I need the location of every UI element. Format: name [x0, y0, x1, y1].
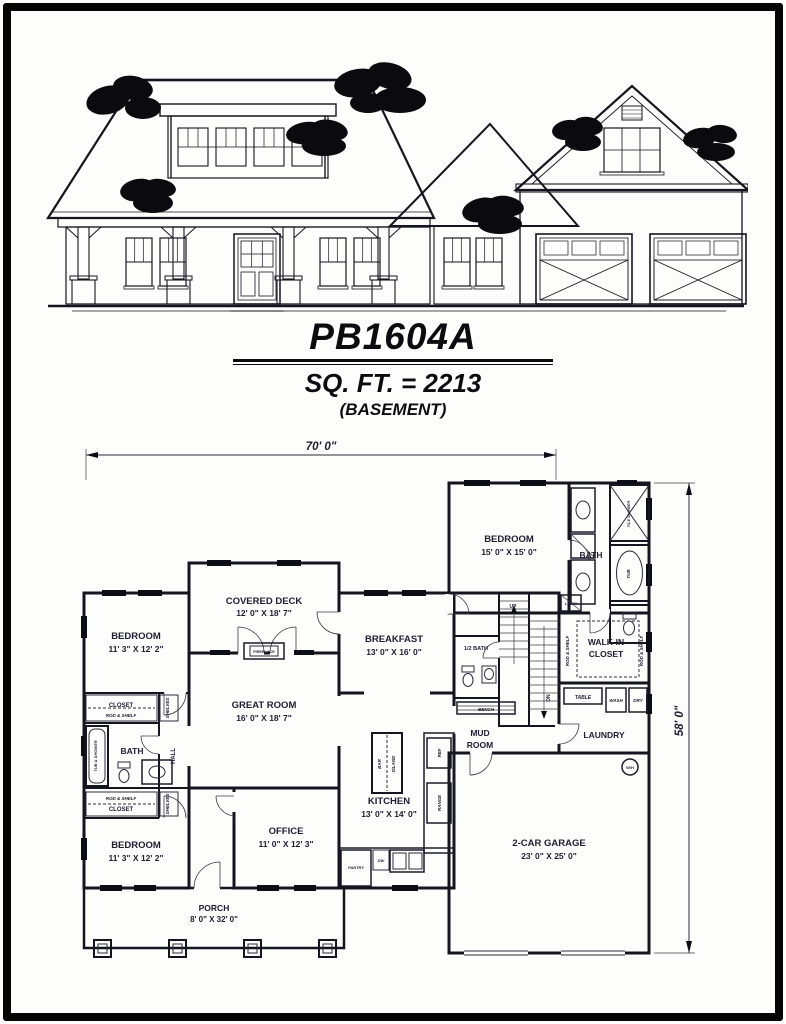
main-windows	[124, 238, 504, 289]
label-mud-room-2: ROOM	[467, 740, 493, 750]
label-porch-dims: 8' 0" X 32' 0"	[190, 915, 238, 924]
label-rod-shelf: ROD & SHELF	[565, 636, 570, 667]
label-bedroom-tl: BEDROOM	[111, 631, 161, 642]
label-hall: HALL	[171, 748, 177, 764]
label-rod-shelf: ROD & SHELF	[106, 713, 137, 718]
label-bath-left: BATH	[121, 746, 144, 756]
label-breakfast: BREAKFAST	[365, 634, 423, 645]
label-garage: 2-CAR GARAGE	[512, 838, 585, 849]
dimension-width: 70' 0"	[86, 441, 556, 480]
title-block: PB1604A SQ. FT. = 2213 (BASEMENT)	[0, 316, 786, 420]
label-bath-right: BATH	[580, 550, 603, 560]
label-porch: PORCH	[199, 903, 230, 913]
label-breakfast-dims: 13' 0" X 16' 0"	[366, 647, 422, 657]
porch-post	[66, 227, 101, 304]
label-linen: LINEN	[565, 601, 577, 606]
label-office: OFFICE	[269, 826, 304, 837]
gable-vent	[622, 106, 642, 120]
vanity-sink	[571, 488, 595, 532]
window	[124, 238, 154, 289]
label-great-room-dims: 16' 0" X 18' 7"	[236, 713, 292, 723]
dimension-depth: 58' 0"	[654, 483, 695, 953]
label-tub: TUB	[626, 569, 631, 579]
window	[318, 238, 348, 289]
vanity-sink	[571, 560, 595, 604]
label-water-heater: W/H	[626, 765, 634, 770]
foliage-blob	[118, 176, 177, 213]
label-rod-shelf: ROD & SHELF	[106, 796, 137, 801]
ground-line	[48, 306, 744, 311]
label-great-room: GREAT ROOM	[232, 700, 297, 711]
kitchen-sink	[390, 850, 424, 872]
main-house-wall	[58, 218, 430, 304]
plan-number: PB1604A	[309, 316, 476, 358]
label-laundry: LAUNDRY	[583, 730, 625, 740]
label-kitchen-dims: 13' 0" X 14' 0"	[361, 809, 417, 819]
vanity-sink	[142, 760, 172, 784]
label-wash: WASH	[609, 698, 623, 703]
label-shelves: SHELVES	[165, 698, 170, 719]
toilet	[118, 762, 130, 783]
label-tile-shower: TILE SHOWER	[627, 501, 631, 528]
label-mud-room-1: MUD	[470, 728, 489, 738]
label-bedroom-tl-dims: 11' 3" X 12' 2"	[108, 644, 163, 654]
fixtures	[86, 485, 649, 957]
label-walk-in-2: CLOSET	[589, 649, 624, 659]
label-kitchen: KITCHEN	[368, 796, 410, 807]
title-rule-thin	[233, 364, 553, 365]
label-bedroom-bl-dims: 11' 3" X 12' 2"	[108, 853, 163, 863]
window	[474, 238, 504, 289]
label-closet: CLOSET	[109, 807, 134, 813]
foliage-blob	[285, 116, 350, 156]
label-covered-deck-dims: 12' 0" X 18' 7"	[236, 608, 292, 618]
label-bar: BAR	[377, 758, 382, 768]
label-garage-dims: 23' 0" X 25' 0"	[521, 851, 577, 861]
front-door	[226, 234, 288, 311]
window	[442, 238, 472, 289]
label-pantry: PANTRY	[348, 865, 364, 870]
label-covered-deck: COVERED DECK	[226, 596, 303, 607]
label-fireplace: FIREPLACE	[253, 650, 275, 654]
label-down: DN	[546, 694, 552, 702]
plan-sheet: PB1604A SQ. FT. = 2213 (BASEMENT) 70' 0"…	[0, 0, 786, 1024]
pedestal-sink	[482, 666, 496, 683]
label-rod-shelf: ROD & SHELF	[639, 636, 644, 667]
front-elevation-drawing	[38, 28, 748, 320]
label-half-bath: 1/2 BATH	[464, 646, 488, 652]
label-office-dims: 11' 0" X 12' 3"	[258, 839, 313, 849]
garage-door-right	[650, 234, 746, 304]
foliage-blob	[332, 58, 426, 113]
label-tub-shower: TUB & SHOWER	[93, 740, 98, 771]
toilet	[623, 612, 636, 635]
label-bedroom-tr: BEDROOM	[484, 534, 534, 545]
attic-window	[600, 128, 664, 175]
label-dry: DRY	[633, 698, 643, 703]
label-range: RANGE	[437, 794, 442, 811]
label-island: ISLAND	[391, 755, 396, 773]
label-closet: CLOSET	[109, 703, 134, 709]
label-table: TABLE	[575, 695, 592, 701]
toilet	[462, 666, 474, 687]
label-bedroom-tr-dims: 15' 0" X 15' 0"	[481, 547, 537, 557]
title-rule-thick	[233, 359, 553, 362]
garage-door-left	[536, 234, 632, 304]
label-ref: REF	[437, 748, 442, 757]
overall-width-dim: 70' 0"	[306, 441, 337, 453]
label-bench: BENCH	[478, 707, 495, 712]
label-bedroom-bl: BEDROOM	[111, 840, 161, 851]
overall-depth-dim: 58' 0"	[674, 705, 686, 736]
basement-note: (BASEMENT)	[0, 400, 786, 420]
label-up: UP	[510, 604, 518, 610]
label-shelves: SHELVES	[165, 794, 170, 815]
label-walk-in-1: WALK-IN	[588, 637, 624, 647]
square-footage: SQ. FT. = 2213	[0, 368, 786, 399]
foliage-blob	[460, 193, 526, 234]
foliage-blob	[551, 115, 605, 151]
label-dw: DW	[378, 858, 386, 863]
floor-plan-drawing: 70' 0" 58' 0"	[72, 436, 706, 988]
foliage-blob	[682, 123, 739, 161]
